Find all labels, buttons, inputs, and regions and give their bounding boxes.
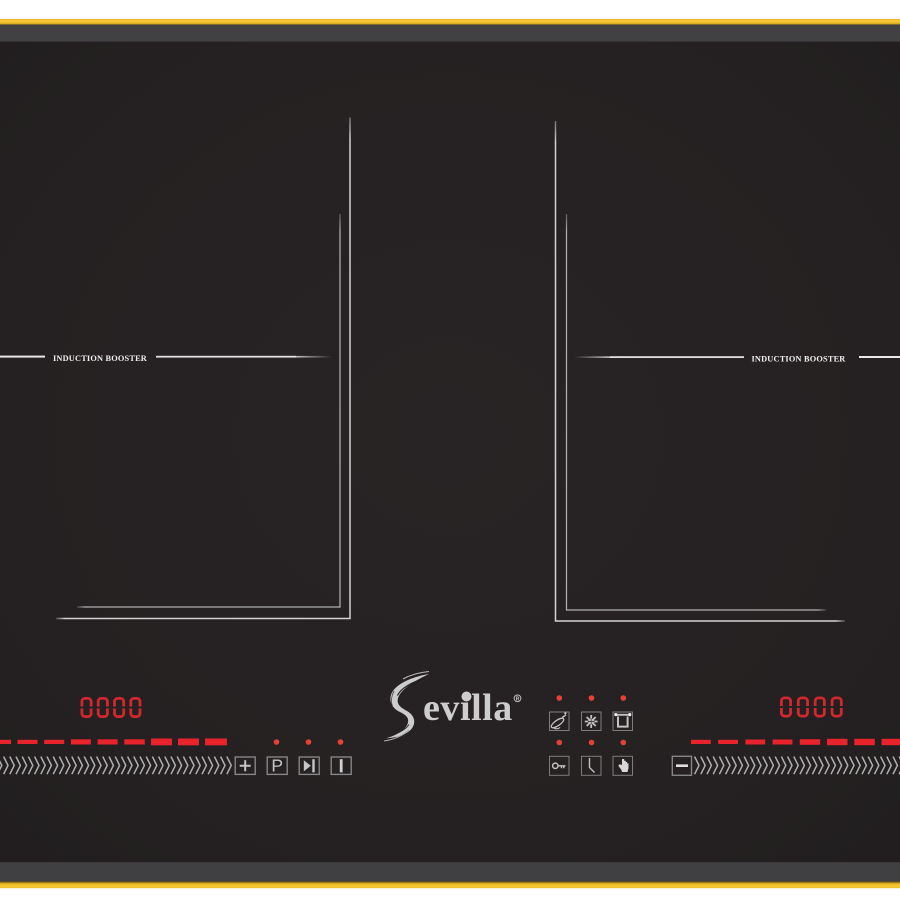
svg-text:P: P xyxy=(271,756,283,776)
svg-text:INDUCTION BOOSTER: INDUCTION BOOSTER xyxy=(752,354,847,363)
svg-text:R: R xyxy=(516,697,520,703)
svg-text:INDUCTION BOOSTER: INDUCTION BOOSTER xyxy=(53,354,148,363)
